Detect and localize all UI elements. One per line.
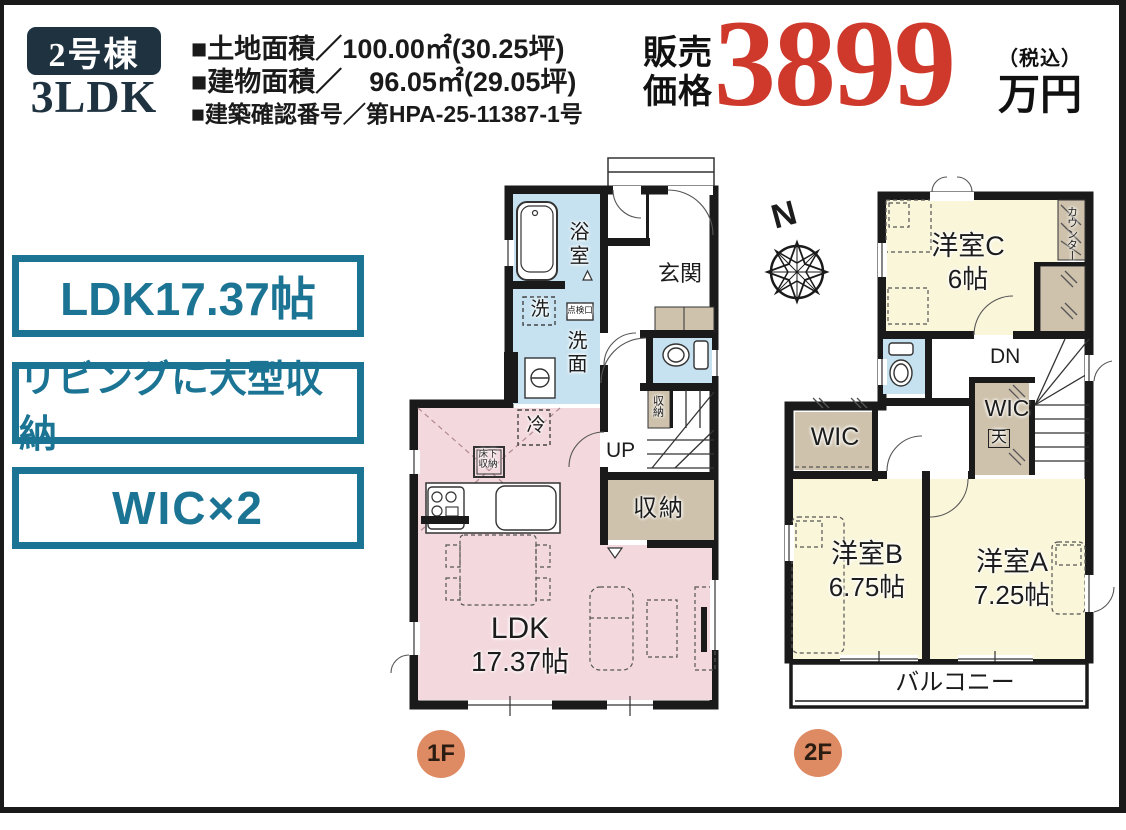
label-up: UP [606,440,635,462]
washbasin [525,358,555,398]
compass-icon [767,242,827,302]
label-entrance: 玄関 [658,262,702,285]
label-room-c: 洋室C [918,232,1018,260]
floor1-badge: 1F [417,730,465,778]
label-dn: DN [990,346,1020,368]
label-fridge: 冷 [520,416,552,436]
label-washroom: 洗面 [564,330,585,376]
feature-ldk-size-label: LDK17.37帖 [60,263,316,329]
label-washer: 洗 [524,300,556,320]
frame-left [0,0,4,813]
price-unit: 万円 [998,75,1108,117]
bathtub [517,202,557,280]
label-counter: カウンター [1065,206,1077,261]
room-b-floor [793,479,922,659]
label-stair-closet: 収納 [651,395,663,417]
price-value: 3899 [714,0,954,129]
frame-bottom [0,807,1126,813]
building-area-text: ■建物面積／ 96.05㎡(29.05坪) [191,60,576,99]
feature-living-storage-label: リビングに大型収納 [19,348,357,458]
label-room-a-size: 7.25帖 [962,582,1062,609]
unit-number-badge: 2号棟 [27,27,161,75]
label-room-b-size: 6.75帖 [817,574,917,601]
price-tax-note: （税込） [998,42,1108,71]
porch [608,158,714,190]
feature-living-storage: リビングに大型収納 [12,362,364,444]
label-underfloor: 床下収納 [477,450,499,470]
confirmation-number-text: ■建築確認番号／第HPA-25-11387-1号 [191,95,583,129]
frame-right [1119,0,1126,813]
label-ldk: LDK [470,613,570,645]
label-storage-1f: 収納 [633,496,685,521]
price-right-column: （税込） 万円 [998,42,1108,117]
unit-type-label: 3LDK [27,74,161,120]
floor2-badge: 2F [794,729,842,777]
label-room-c-size: 6帖 [918,266,1018,293]
tv-board-bar [701,607,707,652]
label-ldk-size: 17.37帖 [455,647,585,676]
feature-ldk-size: LDK17.37帖 [12,255,364,337]
flyer-canvas: 2号棟 3LDK ■土地面積／100.00㎡(30.25坪) ■建物面積／ 96… [0,0,1126,830]
price-label: 販売価格 [643,34,717,112]
label-room-b: 洋室B [817,540,917,568]
frame-top [0,0,1126,5]
label-inspection-hatch: 点検口 [566,306,594,315]
kitchen-counter [421,483,560,533]
label-bathroom: 浴室 [566,221,587,269]
feature-wic-label: WIC×2 [112,481,264,535]
label-balcony: バルコニー [885,670,1025,695]
feature-wic: WIC×2 [12,467,364,549]
label-wic-left: WIC [805,424,865,450]
toilet-2f [889,343,913,386]
label-ceiling-storage: 天 [988,429,1010,448]
label-room-a: 洋室A [962,548,1062,576]
label-wic-right: WIC [977,396,1037,420]
